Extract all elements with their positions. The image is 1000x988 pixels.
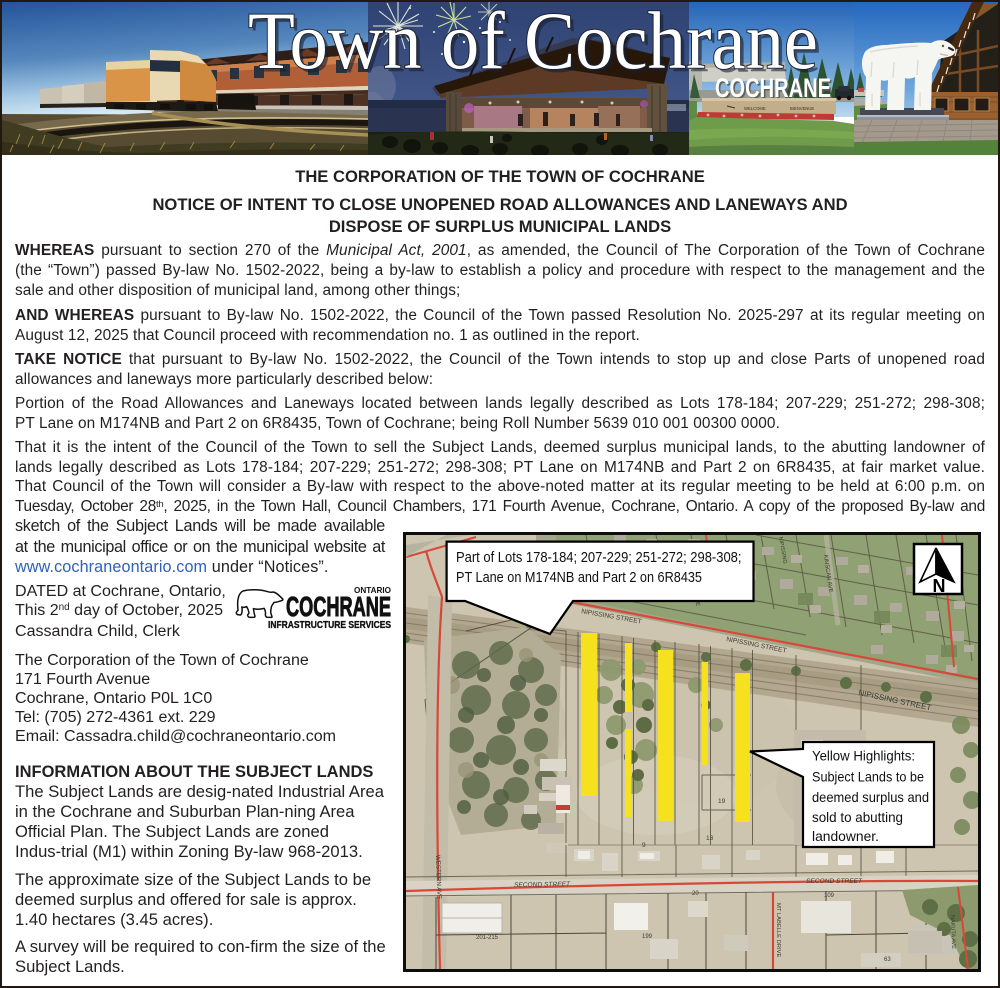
- svg-text:landowner.: landowner.: [812, 829, 879, 844]
- svg-text:Town of Cochrane: Town of Cochrane: [248, 2, 818, 86]
- svg-text:Part of Lots 178-184; 207-229;: Part of Lots 178-184; 207-229; 251-272; …: [456, 550, 742, 566]
- svg-text:199: 199: [642, 934, 653, 940]
- svg-text:INFRASTRUCTURE SERVICES: INFRASTRUCTURE SERVICES: [268, 620, 391, 630]
- svg-text:Yellow Highlights:: Yellow Highlights:: [812, 749, 915, 764]
- svg-text:201-215: 201-215: [476, 935, 499, 941]
- svg-text:9: 9: [642, 842, 646, 849]
- svg-text:13: 13: [706, 835, 714, 842]
- svg-text:SECOND STREET: SECOND STREET: [514, 881, 571, 889]
- svg-text:MT LABELLE DRIVE: MT LABELLE DRIVE: [775, 903, 781, 957]
- svg-text:63: 63: [884, 957, 891, 963]
- svg-text:WELCOME: WELCOME: [744, 106, 766, 111]
- svg-text:COCHRANE: COCHRANE: [286, 591, 391, 622]
- svg-text:BIENVENUE: BIENVENUE: [790, 106, 814, 111]
- svg-text:N: N: [933, 576, 946, 596]
- svg-text:20: 20: [692, 891, 699, 897]
- svg-text:ONTARIO: ONTARIO: [354, 585, 391, 595]
- svg-text:Subject Lands to be: Subject Lands to be: [812, 770, 924, 785]
- svg-text:sold to abutting: sold to abutting: [812, 810, 903, 825]
- svg-text:PT Lane on M174NB and Part 2 o: PT Lane on M174NB and Part 2 on 6R8435: [456, 570, 702, 586]
- svg-text:deemed surplus and: deemed surplus and: [812, 790, 929, 805]
- svg-text:NAKUTA AVE: NAKUTA AVE: [949, 915, 956, 949]
- svg-text:19: 19: [718, 798, 726, 805]
- svg-text:109: 109: [824, 893, 835, 899]
- svg-text:SECOND STREET: SECOND STREET: [806, 878, 863, 885]
